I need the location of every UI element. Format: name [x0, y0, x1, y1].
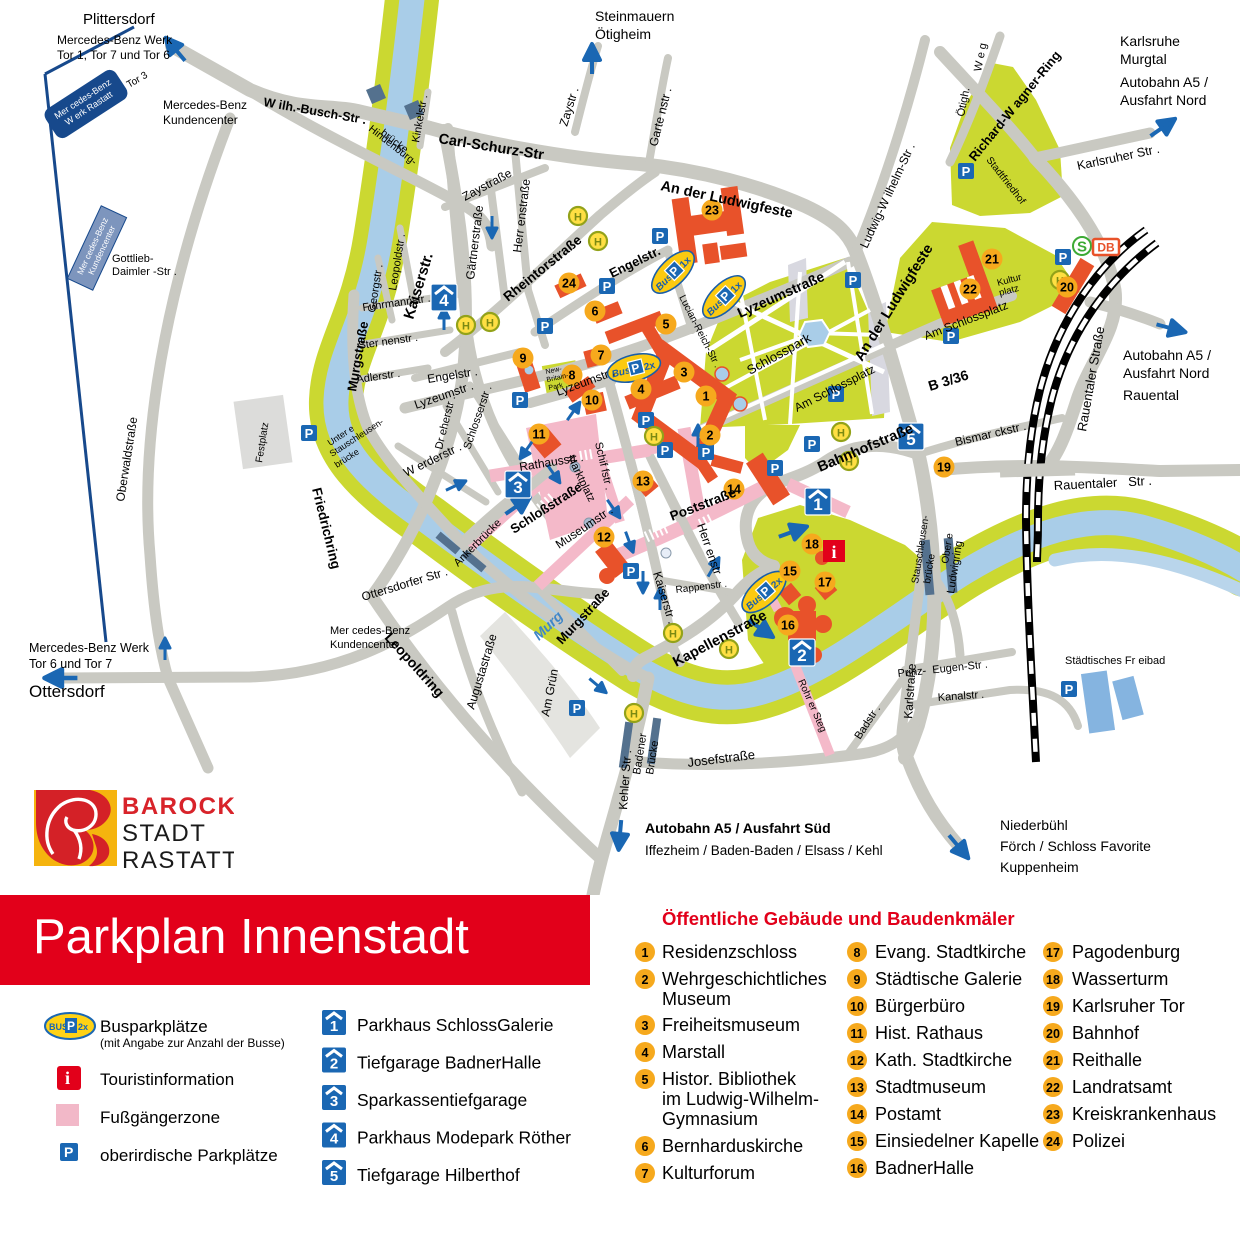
svg-text:Autobahn A5 / Ausfahrt Süd: Autobahn A5 / Ausfahrt Süd — [645, 820, 831, 836]
svg-text:Einsiedelner Kapelle: Einsiedelner Kapelle — [875, 1131, 1039, 1151]
svg-text:12: 12 — [597, 531, 611, 545]
svg-text:im Ludwig-Wilhelm-: im Ludwig-Wilhelm- — [662, 1089, 819, 1109]
svg-text:18: 18 — [1046, 973, 1060, 987]
svg-text:P: P — [67, 1019, 75, 1033]
svg-text:Reithalle: Reithalle — [1072, 1050, 1142, 1070]
svg-text:11: 11 — [532, 428, 545, 442]
svg-text:17: 17 — [818, 576, 832, 590]
svg-text:Rauentaler Str .: Rauentaler Str . — [1053, 473, 1152, 493]
svg-text:Kundencenter: Kundencenter — [163, 113, 238, 127]
svg-text:Ottersdorf: Ottersdorf — [29, 682, 105, 701]
svg-text:Bürgerbüro: Bürgerbüro — [875, 996, 965, 1016]
svg-text:Gymnasium: Gymnasium — [662, 1109, 758, 1129]
svg-text:Ausfahrt Nord: Ausfahrt Nord — [1123, 365, 1209, 381]
svg-text:24: 24 — [562, 277, 576, 291]
svg-text:Parkhaus SchlossGalerie: Parkhaus SchlossGalerie — [357, 1015, 553, 1035]
svg-text:4: 4 — [642, 1046, 649, 1060]
svg-text:Daimler -Str .: Daimler -Str . — [112, 266, 177, 278]
svg-text:Herr enstraße: Herr enstraße — [510, 178, 533, 253]
svg-text:Bernharduskirche: Bernharduskirche — [662, 1136, 803, 1156]
svg-text:9: 9 — [854, 973, 861, 987]
svg-text:Gottlieb-: Gottlieb- — [112, 253, 154, 265]
svg-text:i: i — [831, 542, 836, 562]
svg-text:Museum: Museum — [662, 989, 731, 1009]
svg-text:Kehler Str .: Kehler Str . — [616, 749, 634, 810]
svg-text:Autobahn A5 /: Autobahn A5 / — [1123, 347, 1211, 363]
svg-text:Garte nstr .: Garte nstr . — [646, 86, 674, 148]
svg-text:Landratsamt: Landratsamt — [1072, 1077, 1172, 1097]
svg-text:22: 22 — [1046, 1081, 1060, 1095]
svg-text:20: 20 — [1060, 281, 1074, 295]
svg-text:12: 12 — [850, 1054, 864, 1068]
svg-text:1: 1 — [813, 495, 822, 514]
svg-text:B 3/36: B 3/36 — [926, 366, 970, 393]
svg-text:13: 13 — [636, 475, 650, 489]
svg-text:Ausfahrt Nord: Ausfahrt Nord — [1120, 92, 1206, 108]
svg-text:7: 7 — [598, 349, 605, 363]
svg-text:5: 5 — [330, 1168, 338, 1185]
svg-text:BadnerHalle: BadnerHalle — [875, 1158, 974, 1178]
svg-text:Parkhaus Modepark Röther: Parkhaus Modepark Röther — [357, 1128, 571, 1148]
svg-text:4: 4 — [638, 383, 645, 397]
svg-text:Tiefgarage BadnerHalle: Tiefgarage BadnerHalle — [357, 1053, 541, 1073]
svg-text:Murgtal: Murgtal — [1120, 51, 1167, 67]
svg-text:Mercedes-Benz Werk: Mercedes-Benz Werk — [57, 33, 173, 47]
svg-text:BAROCK: BAROCK — [122, 793, 234, 820]
svg-text:16: 16 — [850, 1162, 864, 1176]
svg-text:Oberwaldstraße: Oberwaldstraße — [113, 416, 140, 503]
svg-text:Pagodenburg: Pagodenburg — [1072, 942, 1180, 962]
svg-text:17: 17 — [1046, 946, 1060, 960]
svg-text:5: 5 — [663, 318, 670, 332]
svg-text:Tor 1, Tor 7 und Tor 6: Tor 1, Tor 7 und Tor 6 — [57, 48, 170, 62]
svg-text:3: 3 — [513, 478, 522, 497]
svg-text:Städtisches Fr eibad: Städtisches Fr eibad — [1065, 655, 1165, 667]
svg-text:Kath. Stadtkirche: Kath. Stadtkirche — [875, 1050, 1012, 1070]
svg-text:15: 15 — [783, 565, 797, 579]
svg-text:Wasserturm: Wasserturm — [1072, 969, 1168, 989]
svg-text:Mercedes-Benz: Mercedes-Benz — [163, 98, 247, 112]
svg-text:Kulturforum: Kulturforum — [662, 1163, 755, 1183]
svg-text:Stadtmuseum: Stadtmuseum — [875, 1077, 986, 1097]
svg-text:19: 19 — [1046, 1000, 1060, 1014]
svg-text:Karlsruher Tor: Karlsruher Tor — [1072, 996, 1185, 1016]
svg-text:2: 2 — [707, 429, 714, 443]
svg-text:Badstr .: Badstr . — [852, 703, 883, 741]
svg-text:10: 10 — [850, 1000, 864, 1014]
svg-text:3: 3 — [642, 1019, 649, 1033]
svg-text:1: 1 — [330, 1018, 338, 1035]
svg-text:10: 10 — [585, 394, 599, 408]
svg-text:DB: DB — [1097, 241, 1115, 255]
svg-text:Ötigheim: Ötigheim — [595, 25, 651, 42]
svg-text:18: 18 — [805, 538, 819, 552]
svg-text:4: 4 — [439, 291, 449, 310]
svg-text:9: 9 — [520, 352, 527, 366]
svg-text:Postamt: Postamt — [875, 1104, 941, 1124]
svg-text:Niederbühl: Niederbühl — [1000, 817, 1068, 833]
svg-text:1: 1 — [703, 390, 710, 404]
svg-text:Polizei: Polizei — [1072, 1131, 1125, 1151]
svg-text:Förch / Schloss Favorite: Förch / Schloss Favorite — [1000, 838, 1151, 854]
svg-text:Leopoldring: Leopoldring — [382, 629, 448, 700]
svg-text:Kanalstr .: Kanalstr . — [937, 689, 984, 704]
svg-text:Tiefgarage Hilberthof: Tiefgarage Hilberthof — [357, 1165, 520, 1185]
svg-text:24: 24 — [1046, 1135, 1060, 1149]
svg-text:Marstall: Marstall — [662, 1042, 725, 1062]
svg-text:11: 11 — [850, 1027, 863, 1041]
svg-text:Histor. Bibliothek: Histor. Bibliothek — [662, 1069, 797, 1089]
svg-text:Kreiskrankenhaus: Kreiskrankenhaus — [1072, 1104, 1216, 1124]
svg-text:Öffentliche Gebäude und Bauden: Öffentliche Gebäude und Baudenkmäler — [662, 908, 1015, 929]
svg-text:3: 3 — [681, 366, 688, 380]
svg-text:5: 5 — [642, 1073, 649, 1087]
svg-text:21: 21 — [985, 253, 999, 267]
svg-text:13: 13 — [850, 1081, 864, 1095]
svg-text:7: 7 — [642, 1167, 649, 1181]
svg-text:2: 2 — [330, 1056, 338, 1073]
svg-text:14: 14 — [850, 1108, 864, 1122]
svg-text:16: 16 — [781, 619, 795, 633]
svg-text:Rauental: Rauental — [1123, 387, 1179, 403]
svg-text:2: 2 — [797, 646, 806, 665]
svg-text:2: 2 — [642, 973, 649, 987]
svg-text:Residenzschloss: Residenzschloss — [662, 942, 797, 962]
svg-text:Städtische Galerie: Städtische Galerie — [875, 969, 1022, 989]
svg-text:22: 22 — [963, 283, 977, 297]
svg-text:Hist. Rathaus: Hist. Rathaus — [875, 1023, 983, 1043]
svg-text:Karlsruhe: Karlsruhe — [1120, 33, 1180, 49]
svg-text:RASTATT: RASTATT — [122, 847, 234, 872]
svg-text:Plittersdorf: Plittersdorf — [83, 11, 156, 28]
svg-text:Freiheitsmuseum: Freiheitsmuseum — [662, 1015, 800, 1035]
svg-text:Steinmauern: Steinmauern — [595, 8, 674, 24]
svg-text:Evang. Stadtkirche: Evang. Stadtkirche — [875, 942, 1026, 962]
svg-text:Tor 3: Tor 3 — [125, 70, 150, 91]
svg-text:Kuppenheim: Kuppenheim — [1000, 859, 1079, 875]
svg-text:Autobahn A5 /: Autobahn A5 / — [1120, 74, 1208, 90]
svg-text:Iffezheim / Baden-Baden / Elsa: Iffezheim / Baden-Baden / Elsass / Kehl — [645, 843, 883, 858]
svg-text:S: S — [1077, 239, 1087, 256]
svg-text:Bismar ckstr .: Bismar ckstr . — [954, 419, 1028, 449]
svg-text:Sparkassentiefgarage: Sparkassentiefgarage — [357, 1090, 527, 1110]
svg-text:3: 3 — [330, 1093, 338, 1110]
svg-text:6: 6 — [642, 1140, 649, 1154]
svg-text:STADT: STADT — [122, 820, 206, 847]
svg-text:Tor 6 und Tor 7: Tor 6 und Tor 7 — [29, 657, 112, 671]
svg-text:20: 20 — [1046, 1027, 1060, 1041]
svg-text:Friedrichring: Friedrichring — [309, 486, 344, 570]
svg-text:19: 19 — [937, 461, 951, 475]
svg-text:Bahnhof: Bahnhof — [1072, 1023, 1140, 1043]
svg-text:Mercedes-Benz Werk: Mercedes-Benz Werk — [29, 641, 150, 655]
svg-text:Wehrgeschichtliches: Wehrgeschichtliches — [662, 969, 827, 989]
svg-text:21: 21 — [1046, 1054, 1060, 1068]
svg-text:1: 1 — [642, 946, 649, 960]
svg-text:8: 8 — [854, 946, 861, 960]
svg-text:2x: 2x — [78, 1022, 88, 1032]
svg-text:23: 23 — [1046, 1108, 1060, 1122]
svg-text:4: 4 — [330, 1131, 339, 1148]
svg-text:15: 15 — [850, 1135, 864, 1149]
svg-text:6: 6 — [592, 305, 599, 319]
